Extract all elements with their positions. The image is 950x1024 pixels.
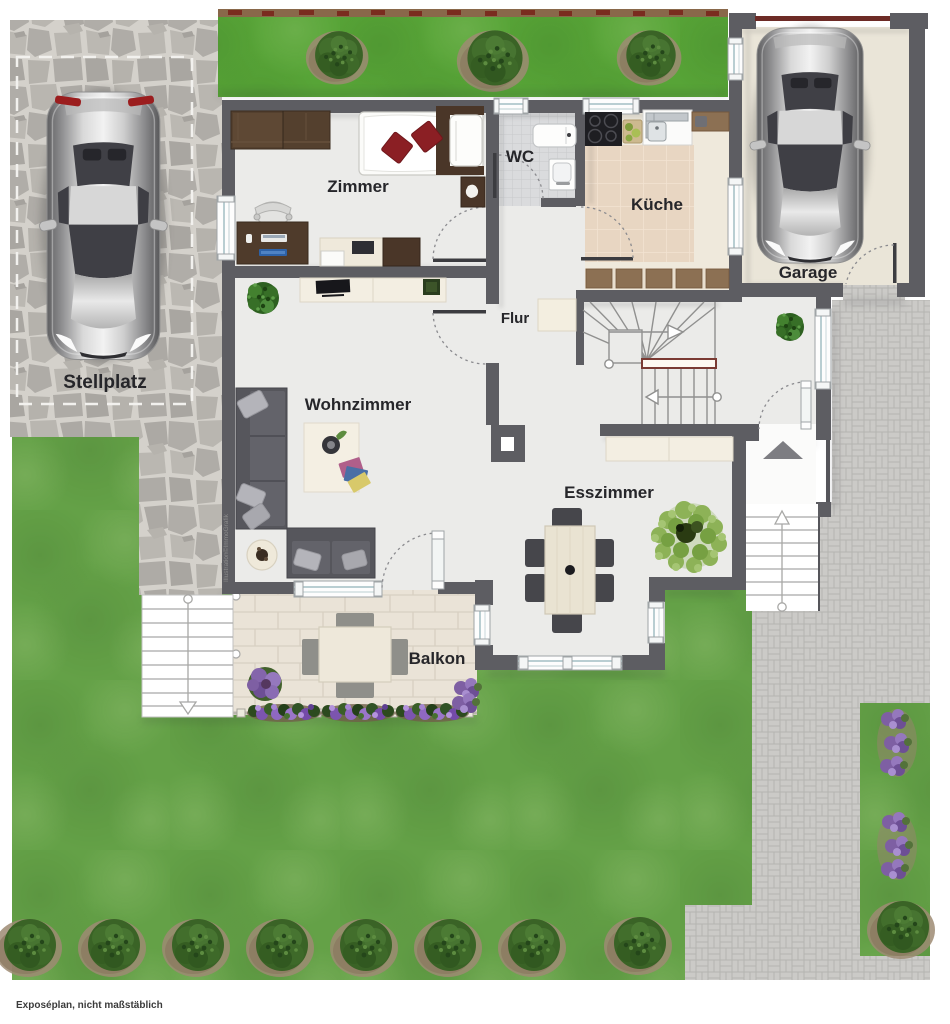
svg-text:Küche: Küche bbox=[631, 195, 683, 214]
svg-text:Exposéplan, nicht maßstäblich: Exposéplan, nicht maßstäblich bbox=[16, 1000, 163, 1011]
svg-text:Zimmer: Zimmer bbox=[327, 177, 389, 196]
svg-text:Flur: Flur bbox=[501, 310, 529, 327]
svg-text:Stellplatz: Stellplatz bbox=[63, 372, 146, 393]
svg-text:Illustration©ImmoGrafik: Illustration©ImmoGrafik bbox=[222, 513, 230, 582]
svg-text:Wohnzimmer: Wohnzimmer bbox=[305, 395, 412, 414]
svg-text:WC: WC bbox=[506, 147, 534, 166]
svg-text:Esszimmer: Esszimmer bbox=[564, 483, 654, 502]
svg-text:Garage: Garage bbox=[779, 263, 838, 282]
svg-text:Balkon: Balkon bbox=[409, 649, 466, 668]
